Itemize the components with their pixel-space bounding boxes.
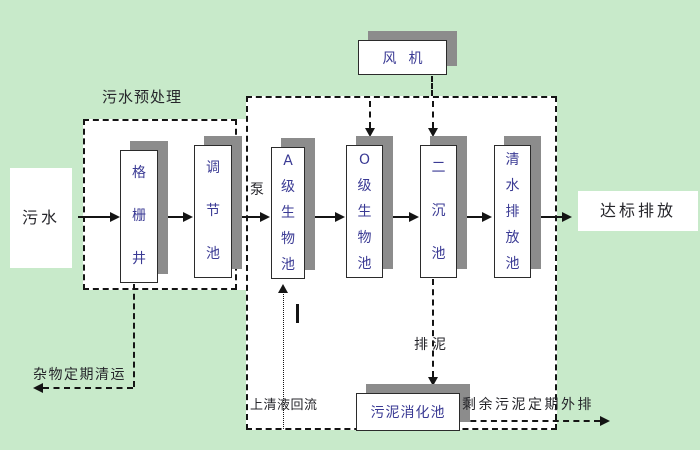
excess-sludge-out-label: 剩余污泥定期外排 [462, 397, 594, 415]
arrowhead-right-icon [482, 212, 492, 222]
excess-sludge-out-line [460, 420, 600, 422]
arrowhead-right-icon [335, 212, 345, 222]
node-label: A级生物池 [280, 148, 295, 278]
wastewater-treatment-flow-diagram: 格栅井 调节池 A级生物池 O级生物池 二沉池 清水排放池 风机 污泥消化池 污… [0, 0, 700, 450]
arrowhead-right-icon [409, 212, 419, 222]
node-label: O级生物池 [357, 147, 372, 277]
arrowhead-right-icon [562, 212, 572, 222]
debris-removal-vline [133, 284, 135, 387]
node-o-bio-tank: O级生物池 [346, 145, 383, 278]
node-label: 清水排放池 [505, 147, 520, 277]
effluent-label: 达标排放 [600, 201, 676, 221]
sludge-discharge-line [432, 279, 434, 377]
pump-label: 泵 [250, 182, 264, 200]
influent-box: 污水 [10, 168, 72, 268]
arrowhead-left-icon [33, 383, 43, 393]
node-label: 二沉池 [431, 147, 446, 276]
arrowhead-right-icon [600, 416, 610, 426]
flow-line-influent-to-grille [78, 216, 110, 218]
node-a-bio-tank: A级生物池 [271, 147, 305, 279]
pretreatment-group-label: 污水预处理 [102, 88, 182, 107]
arrowhead-right-icon [183, 212, 193, 222]
arrowhead-up-icon [278, 284, 288, 293]
sludge-discharge-label: 排泥 [414, 337, 450, 355]
node-label: 污泥消化池 [371, 402, 446, 422]
air-line-to-obio [369, 101, 371, 128]
debris-removal-label: 杂物定期清运 [33, 367, 126, 385]
arrowhead-right-icon [260, 212, 270, 222]
node-blower: 风机 [358, 40, 447, 75]
node-grille-well: 格栅井 [120, 150, 158, 283]
node-regulating-tank: 调节池 [194, 145, 232, 278]
blower-stem-line [431, 76, 433, 96]
influent-label: 污水 [22, 208, 60, 228]
effluent-box: 达标排放 [578, 191, 698, 231]
supernatant-return-label: 上清液回流 [250, 398, 318, 414]
node-secondary-sed-tank: 二沉池 [420, 145, 457, 278]
tick-mark [296, 304, 299, 323]
node-label: 格栅井 [131, 152, 146, 281]
arrowhead-right-icon [110, 212, 120, 222]
node-label: 风机 [371, 48, 435, 68]
air-line-to-sed [432, 101, 434, 128]
node-sludge-digestion-tank: 污泥消化池 [356, 393, 460, 431]
debris-removal-hline [43, 387, 133, 389]
node-label: 调节池 [205, 147, 220, 276]
node-clear-water-tank: 清水排放池 [494, 145, 531, 278]
